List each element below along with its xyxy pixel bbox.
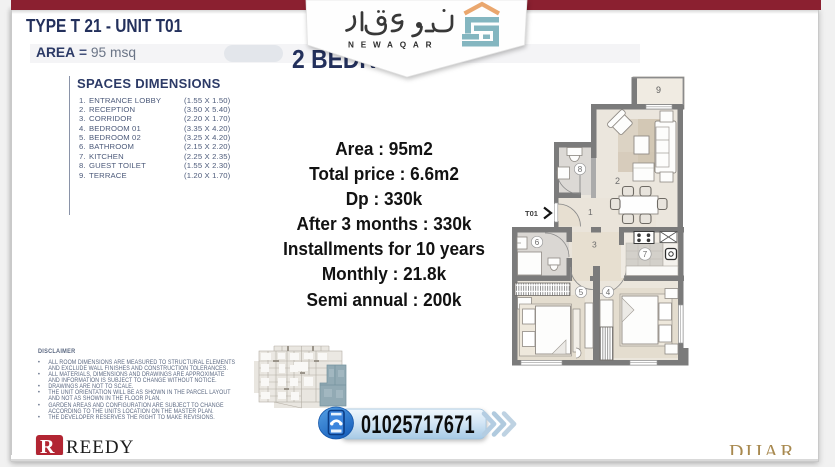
svg-text:3: 3 <box>592 240 597 250</box>
svg-text:1: 1 <box>588 207 593 217</box>
svg-text:NEWAQAR: NEWAQAR <box>348 41 438 50</box>
svg-text:2: 2 <box>615 176 620 186</box>
svg-text:5: 5 <box>579 288 584 297</box>
svg-text:6: 6 <box>535 238 540 247</box>
svg-text:4: 4 <box>606 288 611 297</box>
svg-text:01025717671: 01025717671 <box>361 410 475 439</box>
svg-text:8: 8 <box>578 165 583 174</box>
svg-text:9: 9 <box>656 85 661 95</box>
svg-text:T01: T01 <box>525 209 538 218</box>
svg-text:7: 7 <box>643 250 648 259</box>
